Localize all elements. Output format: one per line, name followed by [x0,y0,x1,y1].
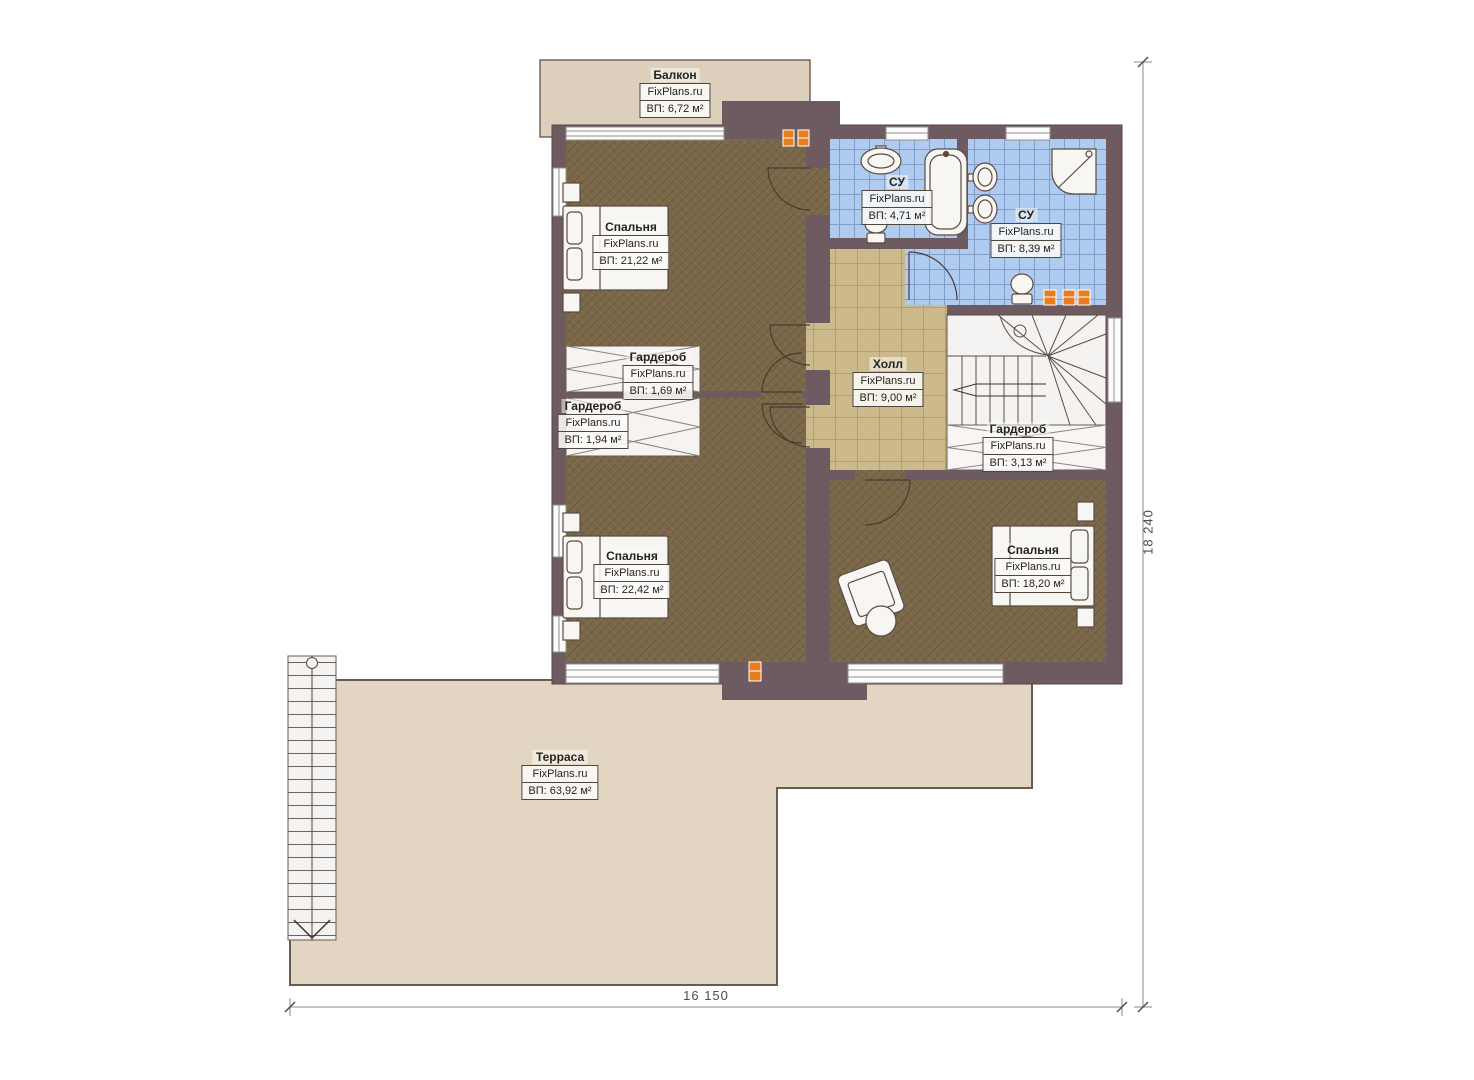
brand: FixPlans.ru [640,84,709,100]
pillow [567,541,582,573]
brand: FixPlans.ru [522,766,597,782]
room-name: Спальня [603,549,661,563]
window [848,664,1003,683]
room-name: Гардероб [627,350,690,364]
pillow [1071,567,1088,600]
room-label-wardrobe3: Гардероб FixPlans.ru ВП: 3,13 м² [982,422,1053,472]
terrace-floor [290,680,1032,985]
room-label-wardrobe2: Гардероб FixPlans.ru ВП: 1,94 м² [557,399,628,449]
room-label-terrace: Терраса FixPlans.ru ВП: 63,92 м² [521,750,598,800]
room-area: ВП: 22,42 м² [594,581,669,598]
window [1006,127,1050,140]
room-area: ВП: 1,94 м² [558,431,627,448]
room-label-balcony: Балкон FixPlans.ru ВП: 6,72 м² [639,68,710,118]
room-label-bedroom3: Спальня FixPlans.ru ВП: 18,20 м² [994,543,1071,593]
pillow [567,248,582,280]
room-area: ВП: 8,39 м² [991,240,1060,257]
room-label-bedroom1: Спальня FixPlans.ru ВП: 21,22 м² [592,220,669,270]
room-area: ВП: 21,22 м² [593,252,668,269]
pillow [1071,530,1088,563]
staircase-floor [947,315,1106,425]
pillow [567,212,582,244]
doorway-patch [855,470,905,480]
brand: FixPlans.ru [558,415,627,431]
window [1108,318,1121,402]
coffee-table [866,606,896,636]
room-name: Гардероб [562,399,625,413]
room-area: ВП: 6,72 м² [640,100,709,117]
brand: FixPlans.ru [853,373,922,389]
room-name: Балкон [650,68,699,82]
floor-plan-drawing [0,0,1474,1080]
radiator [749,662,761,681]
brand: FixPlans.ru [594,565,669,581]
exterior-staircase [288,656,336,940]
radiator [798,130,809,146]
brand: FixPlans.ru [862,191,931,207]
wall-block-top [722,101,840,141]
window [566,664,719,683]
doorway-patch [806,405,830,448]
window [886,127,928,140]
dimension-width-label: 16 150 [683,988,729,1003]
room-name: Спальня [602,220,660,234]
doorway-patch [806,323,830,370]
brand: FixPlans.ru [623,366,692,382]
floor-plan-canvas: Балкон FixPlans.ru ВП: 6,72 м² Спальня F… [0,0,1474,1080]
radiator [783,130,794,146]
room-area: ВП: 9,00 м² [853,389,922,406]
radiator [1063,290,1075,305]
room-area: ВП: 1,69 м² [623,382,692,399]
room-name: Холл [870,357,906,371]
stair-newel-icon [307,658,318,669]
room-name: СУ [1015,208,1037,222]
room-label-bath1: СУ FixPlans.ru ВП: 4,71 м² [861,175,932,225]
room-name: Спальня [1004,543,1062,557]
brand: FixPlans.ru [593,236,668,252]
room-area: ВП: 18,20 м² [995,575,1070,592]
radiator [1078,290,1090,305]
radiator [1044,290,1056,305]
pillow [567,577,582,609]
brand: FixPlans.ru [991,224,1060,240]
window [566,127,724,140]
doorway-patch [806,168,830,215]
shower [1052,149,1096,194]
wall-block-bottom [722,660,867,700]
room-area: ВП: 4,71 м² [862,207,931,224]
toilet [1011,274,1033,304]
room-area: ВП: 63,92 м² [522,782,597,799]
room-name: Терраса [533,750,587,764]
room-name: СУ [886,175,908,189]
room-label-wardrobe1: Гардероб FixPlans.ru ВП: 1,69 м² [622,350,693,400]
room-area: ВП: 3,13 м² [983,454,1052,471]
room-label-bedroom2: Спальня FixPlans.ru ВП: 22,42 м² [593,549,670,599]
room-label-bath2: СУ FixPlans.ru ВП: 8,39 м² [990,208,1061,258]
brand: FixPlans.ru [983,438,1052,454]
dimension-height-label: 18 240 [1141,509,1156,555]
room-label-hall: Холл FixPlans.ru ВП: 9,00 м² [852,357,923,407]
room-name: Гардероб [987,422,1050,436]
brand: FixPlans.ru [995,559,1070,575]
